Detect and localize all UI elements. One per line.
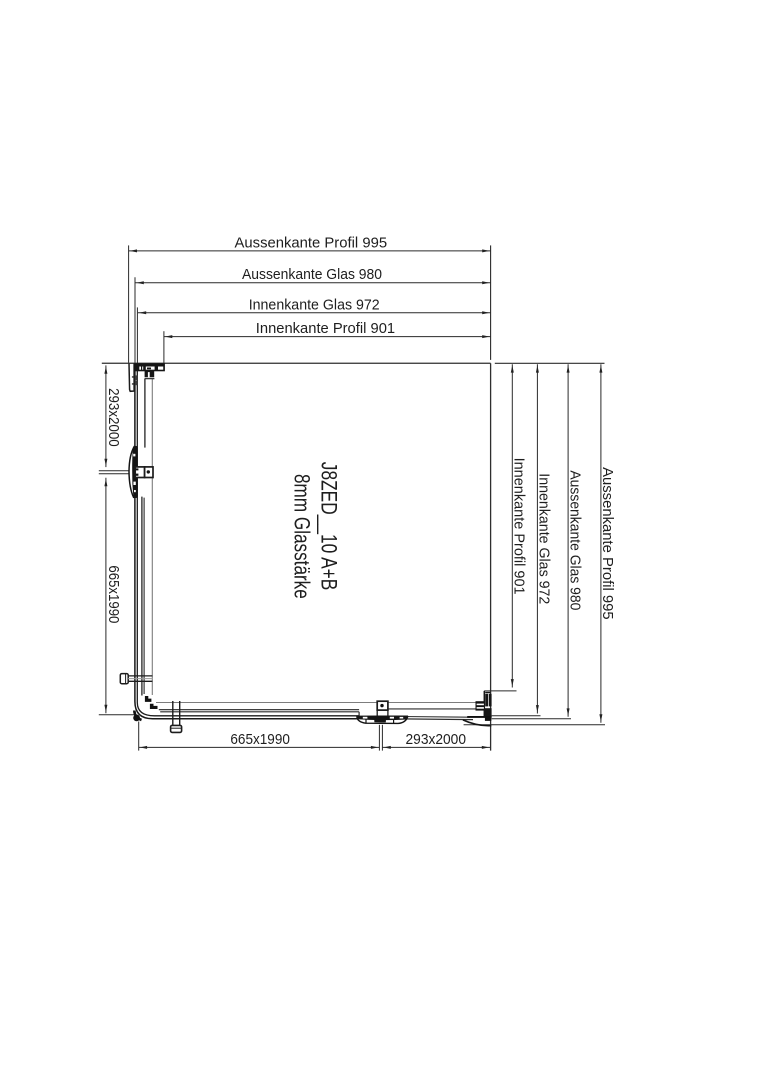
svg-text:665x1990: 665x1990	[230, 731, 290, 748]
svg-text:Aussenkante Profil 995: Aussenkante Profil 995	[235, 234, 388, 251]
svg-text:J8ZED__10 A+B: J8ZED__10 A+B	[317, 462, 342, 591]
svg-text:8mm Glasstärke: 8mm Glasstärke	[290, 474, 315, 599]
svg-text:Innenkante Profil 901: Innenkante Profil 901	[256, 320, 395, 337]
svg-text:665x1990: 665x1990	[105, 565, 122, 623]
svg-text:Innenkante Glas 972: Innenkante Glas 972	[536, 473, 553, 604]
svg-text:293x2000: 293x2000	[406, 731, 467, 748]
svg-text:293x2000: 293x2000	[105, 388, 122, 447]
svg-text:Aussenkante Glas 980: Aussenkante Glas 980	[566, 470, 583, 610]
svg-text:Innenkante Profil 901: Innenkante Profil 901	[511, 458, 528, 595]
svg-text:Aussenkante Glas 980: Aussenkante Glas 980	[242, 266, 382, 283]
svg-text:Aussenkante Profil 995: Aussenkante Profil 995	[599, 467, 616, 620]
svg-text:Innenkante Glas 972: Innenkante Glas 972	[249, 296, 380, 313]
